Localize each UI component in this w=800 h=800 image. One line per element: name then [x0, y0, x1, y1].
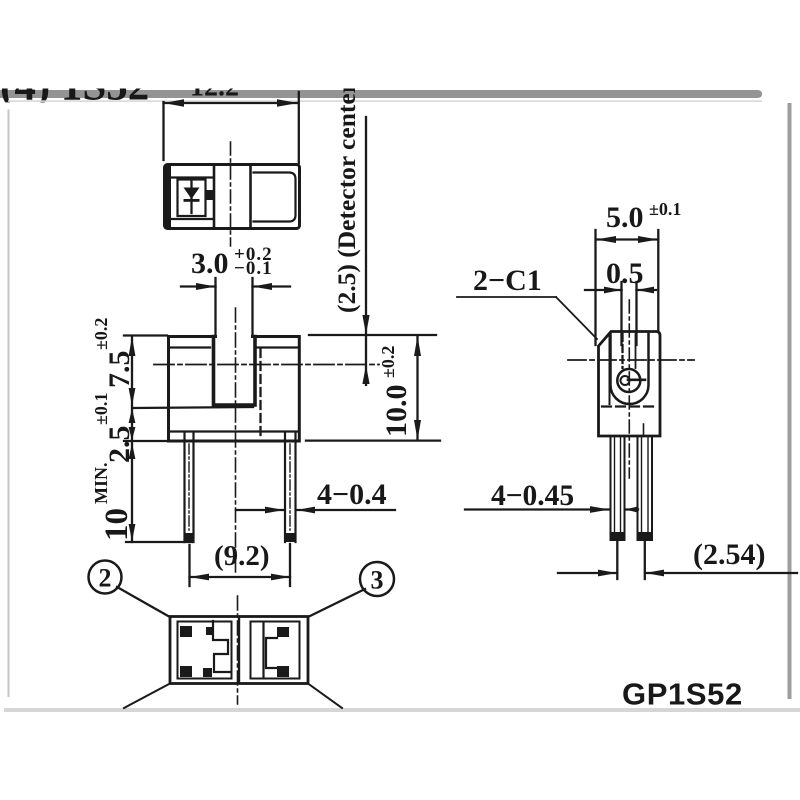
svg-text:4−0.45: 4−0.45 [491, 480, 574, 512]
svg-text:MIN.: MIN. [91, 463, 111, 505]
svg-text:2.5: 2.5 [103, 426, 136, 464]
svg-text:(2.54): (2.54) [693, 538, 765, 571]
svg-text:7.5: 7.5 [103, 351, 136, 389]
svg-text:±0.2: ±0.2 [378, 346, 398, 378]
svg-text:(9.2): (9.2) [214, 540, 270, 572]
svg-text:±0.1: ±0.1 [91, 393, 111, 425]
svg-text:±0.2: ±0.2 [91, 318, 111, 350]
svg-text:3: 3 [371, 566, 384, 595]
svg-text:5.0: 5.0 [606, 201, 644, 234]
svg-text:10.0: 10.0 [380, 385, 413, 438]
svg-text:4−0.4: 4−0.4 [317, 478, 387, 511]
svg-text:(2.5) (Detector center): (2.5) (Detector center) [332, 74, 361, 314]
svg-text:2−C1: 2−C1 [473, 264, 542, 297]
svg-text:−0.1: −0.1 [234, 258, 273, 279]
svg-text:3.0: 3.0 [191, 247, 229, 280]
svg-text:±0.1: ±0.1 [649, 199, 681, 219]
svg-text:10: 10 [99, 508, 135, 541]
svg-text:GP1S52: GP1S52 [622, 677, 743, 712]
svg-text:2: 2 [99, 564, 112, 593]
svg-text:0.5: 0.5 [606, 257, 644, 290]
